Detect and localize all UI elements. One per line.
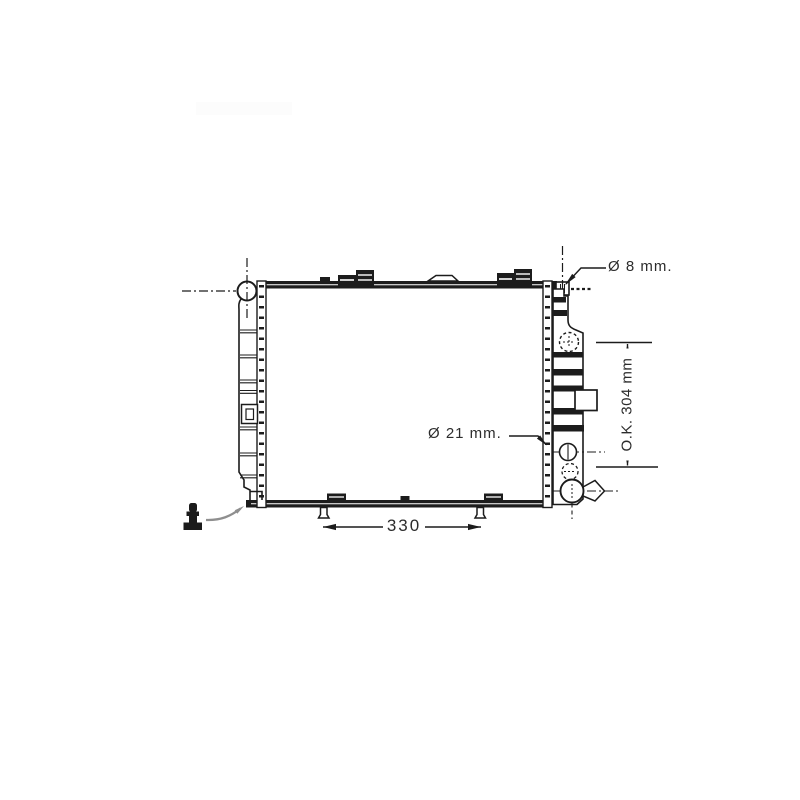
bottom-peg-left: [319, 508, 330, 519]
top-tab-right-large: [514, 269, 532, 286]
radiator-core: [246, 281, 557, 508]
top-center-bump: [428, 276, 458, 282]
left-tank-outline: [239, 299, 250, 500]
top-tab-left-large: [356, 270, 374, 286]
label-port-diameter-21mm: Ø 21 mm.: [428, 426, 502, 443]
left-bracket-slot: [242, 405, 258, 424]
leader-dia-8: [565, 268, 606, 285]
top-tick: [320, 277, 330, 281]
label-hole-diameter-8mm: Ø 8 mm.: [608, 259, 673, 276]
mounting-stud-callout: [184, 503, 245, 530]
leader-dia-21: [509, 435, 547, 445]
label-height-ok-304mm: O.K. 304 mm: [620, 349, 637, 461]
stud-icon: [184, 503, 203, 530]
drawing-linework: [0, 0, 800, 800]
label-width-330: 330: [383, 517, 425, 536]
drain-port-circle: [561, 480, 584, 503]
square-connector: [575, 390, 597, 411]
core-left-edge: [257, 281, 266, 508]
core-right-edge: [543, 281, 552, 508]
right-tank: [553, 289, 618, 519]
bottom-center-notch: [401, 496, 410, 501]
arrowhead-left: [323, 524, 336, 530]
left-tank: [182, 258, 262, 500]
arrowhead-right: [468, 524, 481, 530]
bottom-peg-right: [475, 508, 486, 519]
radiator-technical-drawing: Ø 8 mm. Ø 21 mm. O.K. 304 mm 330: [0, 0, 800, 800]
